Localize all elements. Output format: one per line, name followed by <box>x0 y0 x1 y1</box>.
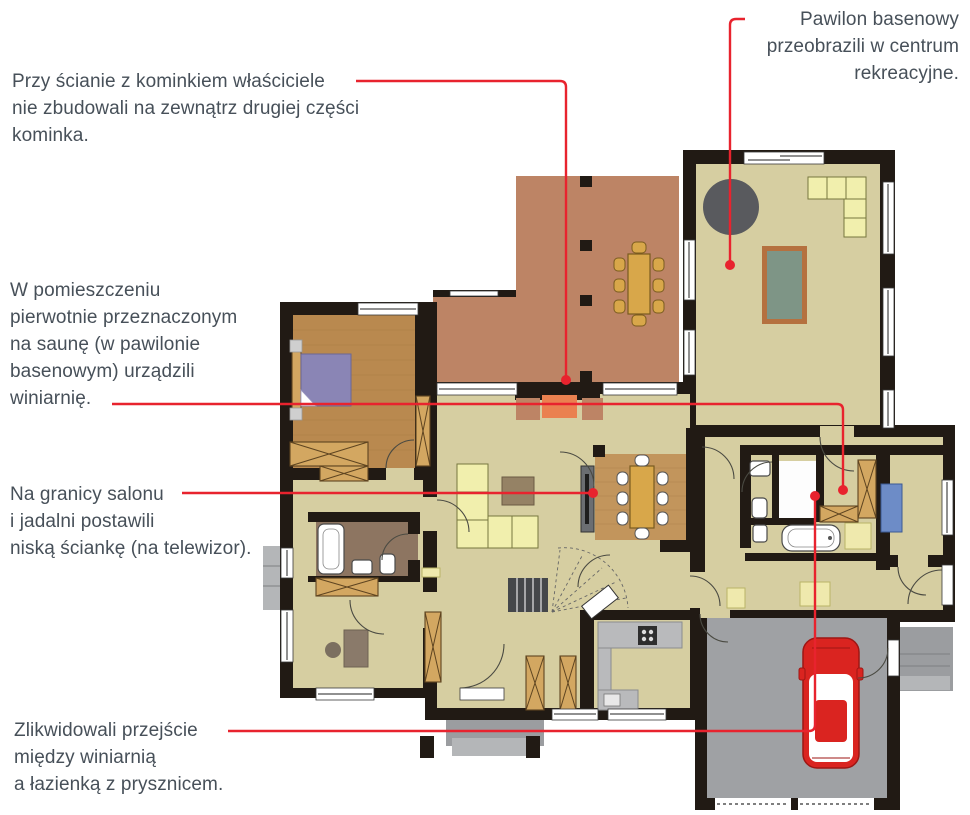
window <box>281 548 293 578</box>
annotation-line: nie zbudowali na zewnątrz drugiej części <box>12 95 359 122</box>
car <box>799 638 863 768</box>
leader-dot-fireplace <box>561 375 571 385</box>
window <box>942 480 953 535</box>
annotation-line: Przy ścianie z kominkiem właściciele <box>12 68 359 95</box>
annotation-line: basenowym) urządzili <box>10 358 237 385</box>
annotation-line: W pomieszczeniu <box>10 277 237 304</box>
sink <box>752 498 767 518</box>
bathroom-wardrobe <box>316 578 378 596</box>
window <box>437 383 517 395</box>
annotation-tv-wall-text: Na granicy salonu i jadalni postawili ni… <box>10 481 252 562</box>
window <box>684 240 695 300</box>
annotation-line: Pawilon basenowy <box>767 6 959 33</box>
entry-door <box>460 688 504 700</box>
window <box>608 709 666 720</box>
annotation-line: między winiarnią <box>14 744 223 771</box>
kitchen-sink <box>604 694 620 706</box>
window <box>684 330 695 375</box>
shower-room-floor <box>779 461 817 520</box>
leader-dot-tv-wall <box>588 488 598 498</box>
back-porch <box>893 627 953 691</box>
fireplace <box>515 382 603 420</box>
blue-desk <box>881 484 902 532</box>
annotation-fireplace-text: Przy ścianie z kominkiem właściciele nie… <box>12 68 359 149</box>
annotation-line: Zlikwidowali przejście <box>14 717 223 744</box>
annotation-line: przeobrazili w centrum <box>767 33 959 60</box>
billiard-table <box>762 246 807 324</box>
back-door <box>942 565 953 605</box>
leader-dot-pavilion <box>725 260 735 270</box>
annotation-line: kominka. <box>12 122 359 149</box>
window <box>883 390 894 428</box>
stove <box>638 626 657 645</box>
annotation-line: winiarnię. <box>10 385 237 412</box>
nightstand <box>290 408 302 420</box>
annotation-line: niską ściankę (na telewizor). <box>10 535 252 562</box>
window <box>316 688 374 700</box>
sink <box>352 560 372 574</box>
leader-dot-winery <box>838 485 848 495</box>
annotation-winery-text: W pomieszczeniu pierwotnie przeznaczonym… <box>10 277 237 412</box>
desk <box>344 630 368 667</box>
annotated-floor-plan-figure: Przy ścianie z kominkiem właściciele nie… <box>0 0 970 815</box>
annotation-line: na saunę (w pawilonie <box>10 331 237 358</box>
annotation-pavilion-text: Pawilon basenowy przeobrazili w centrum … <box>767 6 959 87</box>
car-mirror <box>799 668 805 680</box>
annotation-line: rekreacyjne. <box>767 60 959 87</box>
nightstand <box>290 340 302 352</box>
leader-dot-passage <box>810 491 820 501</box>
window <box>883 288 894 356</box>
annotation-passage-text: Zlikwidowali przejście między winiarnią … <box>14 717 223 798</box>
garage-floor <box>707 618 887 798</box>
corridor-cabinet <box>727 588 745 608</box>
annotation-line: i jadalni postawili <box>10 508 252 535</box>
sliding-door <box>744 152 824 164</box>
annotation-line: a łazienką z prysznicem. <box>14 771 223 798</box>
window <box>883 182 894 254</box>
window <box>552 709 598 720</box>
window <box>358 303 418 315</box>
desk-chair <box>325 642 341 658</box>
window <box>281 610 293 662</box>
annotation-line: Na granicy salonu <box>10 481 252 508</box>
coffee-table <box>502 477 534 505</box>
annotation-line: pierwotnie przeznaczonym <box>10 304 237 331</box>
garage-side-door <box>888 640 899 676</box>
window <box>603 383 677 395</box>
sink <box>753 525 767 542</box>
